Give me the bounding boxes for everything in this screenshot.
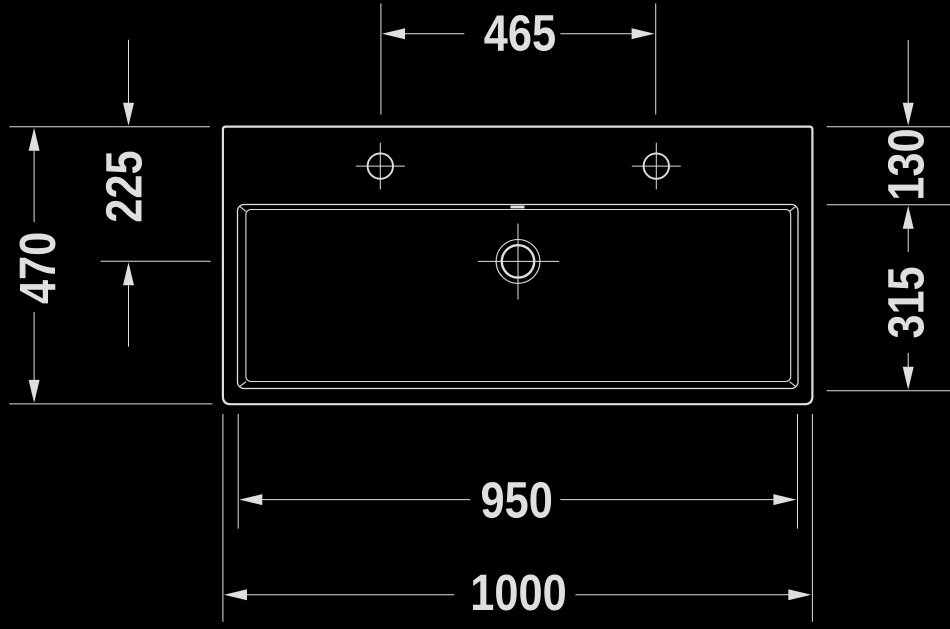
svg-text:470: 470 <box>10 232 67 304</box>
svg-text:950: 950 <box>481 472 553 529</box>
svg-text:465: 465 <box>484 5 556 62</box>
svg-text:315: 315 <box>878 266 935 338</box>
svg-text:130: 130 <box>878 128 935 200</box>
svg-text:225: 225 <box>96 150 153 222</box>
svg-text:1000: 1000 <box>470 565 566 622</box>
